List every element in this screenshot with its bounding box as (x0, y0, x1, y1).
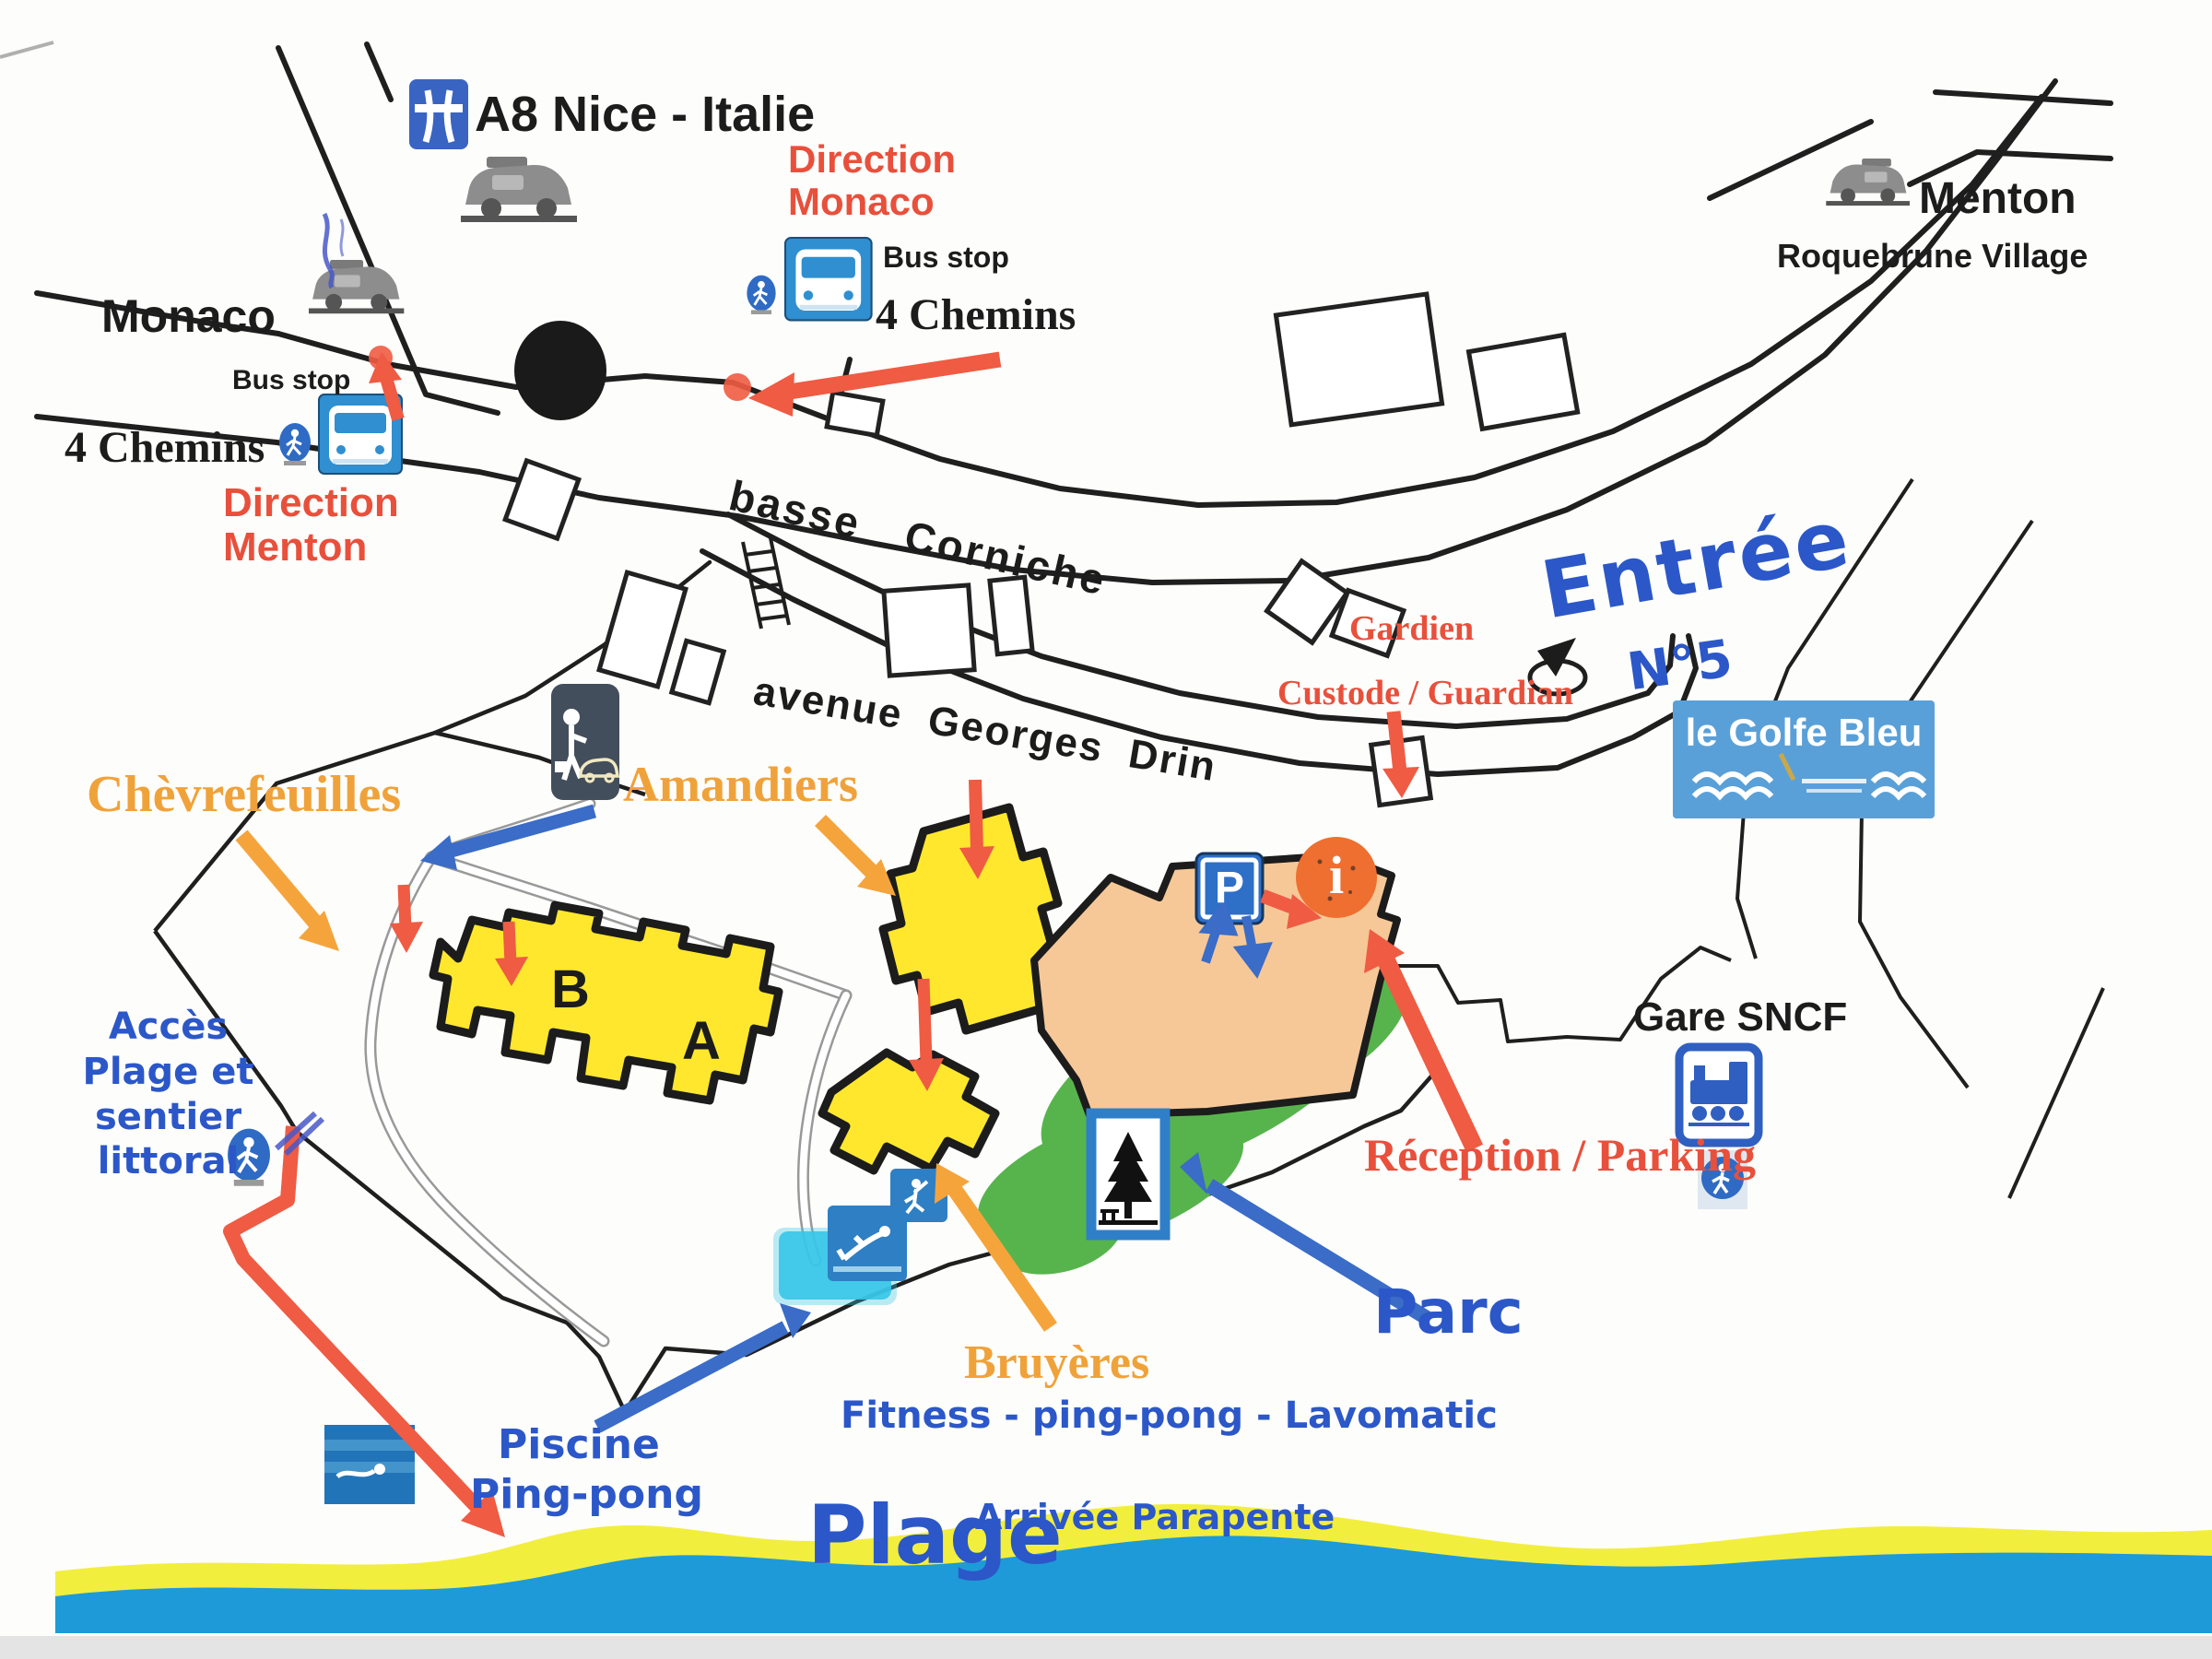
direction-monaco-line1: Direction (788, 138, 956, 181)
label-bruyeres: Bruyères (964, 1336, 1149, 1389)
label-golfe-bleu: le Golfe Bleu (1673, 712, 1935, 754)
direction-menton-line2: Menton (223, 525, 399, 570)
road-topright-1 (1935, 92, 2111, 103)
label-direction-monaco: Direction Monaco (788, 138, 956, 223)
acces-line3: sentier (55, 1095, 281, 1140)
park-picnic-sign-icon (1091, 1113, 1165, 1235)
label-chevrefeuilles: Chèvrefeuilles (87, 767, 401, 824)
scan-bottom-strip (0, 1636, 2212, 1659)
label-building-a: A (682, 1012, 721, 1071)
label-parking-p: P (1196, 853, 1263, 924)
acces-line1: Accès (55, 1005, 281, 1050)
car-icon (1826, 159, 1910, 206)
pedestrian-icon (279, 423, 311, 465)
scan-edge-artifact (0, 42, 53, 57)
label-parc: Parc (1373, 1279, 1524, 1347)
roundabout (514, 321, 606, 420)
road-corniche-upper-edge (278, 97, 2041, 505)
road-a8-spur (367, 44, 391, 100)
label-reception-parking: Réception / Parking (1364, 1130, 1756, 1181)
label-roquebrune-village: Roquebrune Village (1777, 238, 2088, 275)
building-chevrefeuilles (433, 905, 779, 1100)
pen-scribbles (276, 214, 343, 1154)
direction-menton-line1: Direction (223, 481, 399, 525)
label-acces-plage: Accès Plage et sentier littoral (55, 1005, 281, 1184)
label-arrivee-parapente: Arrivée Parapente (975, 1499, 1335, 1537)
acces-line4: littoral (55, 1139, 281, 1184)
label-info-i: i (1296, 833, 1377, 918)
person-with-car-icon (551, 684, 619, 800)
label-building-b: B (551, 960, 590, 1019)
label-gare-sncf: Gare SNCF (1633, 995, 1847, 1040)
label-4-chemins-left: 4 Chemins (65, 424, 265, 473)
label-gardien: Gardien (1349, 610, 1474, 649)
label-direction-menton: Direction Menton (223, 481, 399, 571)
label-4-chemins-center: 4 Chemins (876, 291, 1076, 340)
label-a8-nice-italie: A8 Nice - Italie (475, 88, 815, 142)
car-icon (461, 157, 577, 222)
label-menton: Menton (1919, 175, 2077, 224)
site-access-map: A8 Nice - Italie Monaco Direction Monaco… (0, 0, 2212, 1659)
label-pingpong: Ping-pong (470, 1473, 703, 1517)
residence-buildings (433, 807, 1058, 1171)
label-amandiers: Amandiers (623, 758, 858, 812)
pedestrian-icon (747, 276, 775, 314)
label-piscine: Piscine (498, 1423, 660, 1467)
bus-stop-sign-icon (785, 238, 872, 320)
motorway-sign-icon (409, 79, 468, 149)
building-bruyeres (822, 1053, 995, 1171)
label-custode-guardian: Custode / Guardian (1277, 675, 1573, 713)
label-bus-stop-center: Bus stop (883, 241, 1009, 274)
label-monaco: Monaco (101, 291, 276, 342)
label-fitness-pingpong-lavomatic: Fitness - ping-pong - Lavomatic (841, 1395, 1498, 1436)
direction-monaco-line2: Monaco (788, 181, 956, 223)
label-bus-stop-left: Bus stop (232, 365, 350, 395)
entrance-arrow (1537, 638, 1576, 677)
acces-line2: Plage et (55, 1050, 281, 1095)
